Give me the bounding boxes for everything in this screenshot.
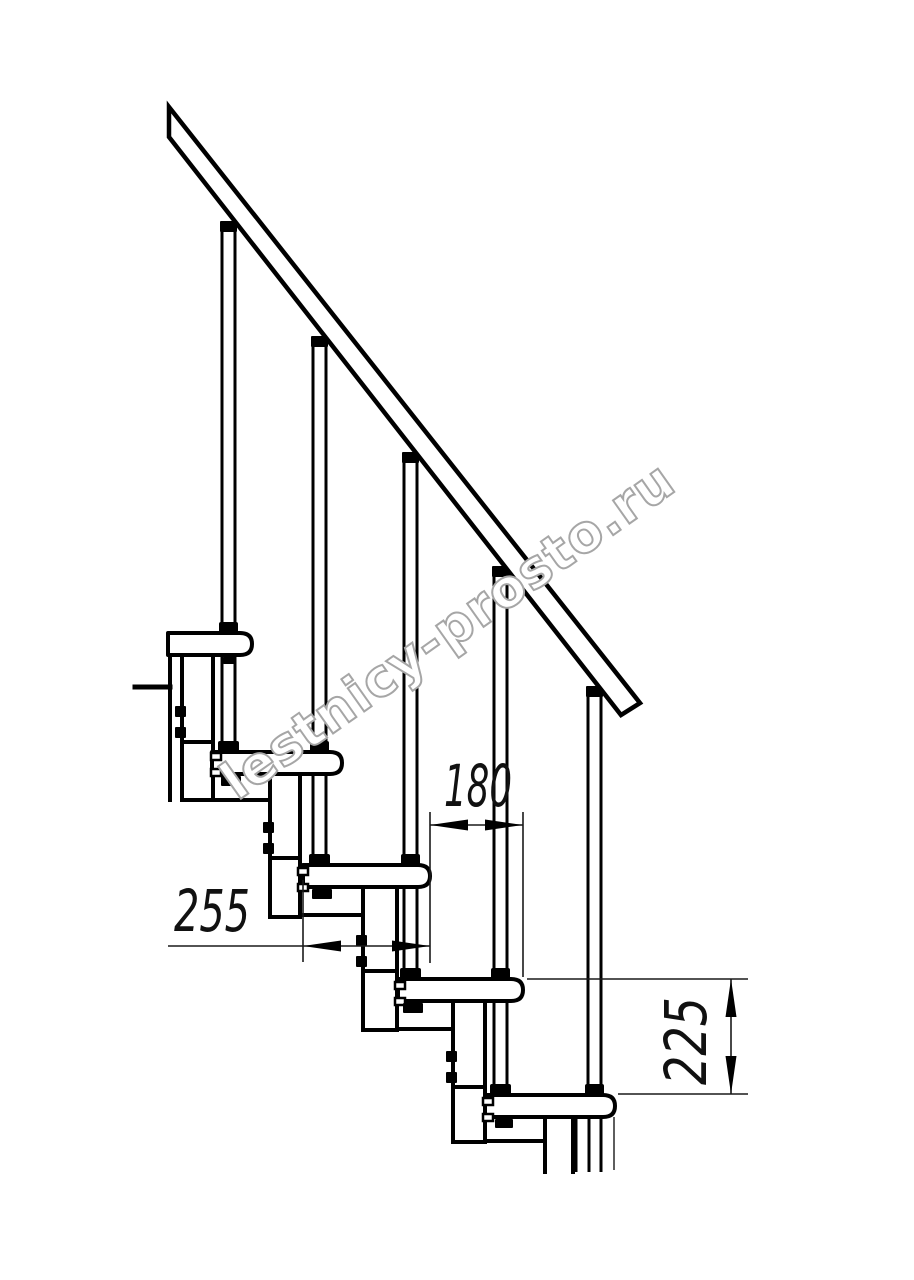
arrow-left-icon: [430, 820, 468, 831]
tread-5: [485, 1095, 615, 1117]
arrow-left-icon: [303, 941, 341, 952]
bolt-icon: [446, 1051, 457, 1062]
module-1-column: [182, 655, 213, 800]
tube-1: [222, 655, 235, 752]
tube-4: [494, 1001, 507, 1095]
drawing-page: 180 255 225 lestnicy-prosto.ru: [0, 0, 914, 1280]
baluster-rod: [588, 695, 601, 1095]
nut-icon: [312, 889, 332, 899]
tube-5-cropped: [576, 1117, 601, 1172]
bolt-icon: [175, 706, 186, 717]
bolt-icon: [356, 935, 367, 946]
baluster-5: [585, 686, 604, 1095]
bolt-icon: [446, 1072, 457, 1083]
tube-2: [313, 774, 326, 865]
staircase-drawing-canvas: 180 255 225 lestnicy-prosto.ru: [0, 0, 914, 1280]
tread-4: [398, 979, 523, 1001]
module-4-column: [453, 1001, 485, 1142]
tube-foot: [400, 968, 421, 979]
tube-foot: [309, 854, 330, 865]
tread-collar: [585, 1084, 604, 1095]
tread-3: [303, 865, 430, 887]
tube-foot: [490, 1084, 511, 1095]
tab-icon: [395, 982, 405, 989]
dimension-run-label: 180: [444, 752, 512, 820]
dimension-depth-label: 255: [174, 877, 250, 945]
extension-lines: [430, 812, 523, 977]
tread-collar: [219, 622, 238, 633]
tread-collar: [401, 854, 420, 865]
bolt-icon: [356, 956, 367, 967]
bolt-icon: [175, 727, 186, 738]
nut-icon: [223, 657, 236, 664]
dimension-rise-label: 225: [652, 997, 720, 1085]
nut-icon: [403, 1003, 423, 1013]
tab-icon: [483, 1098, 493, 1105]
tube-3: [404, 887, 417, 979]
tab-icon: [298, 868, 308, 875]
tab-icon: [483, 1114, 493, 1121]
dimension-rise: 225: [527, 979, 748, 1170]
bolt-icon: [263, 822, 274, 833]
module-2-column: [270, 774, 300, 917]
dimension-run: 180: [430, 752, 523, 977]
nut-icon: [495, 1119, 513, 1128]
tread-1: [168, 633, 252, 655]
tread-collar: [491, 968, 510, 979]
arrow-down-icon: [726, 1056, 737, 1094]
support-module-5: [545, 1117, 573, 1172]
baluster-rod: [222, 230, 235, 633]
baluster-1: [219, 221, 238, 633]
bolt-icon: [263, 843, 274, 854]
module-3-column: [363, 887, 397, 1030]
arrow-up-icon: [726, 979, 737, 1017]
